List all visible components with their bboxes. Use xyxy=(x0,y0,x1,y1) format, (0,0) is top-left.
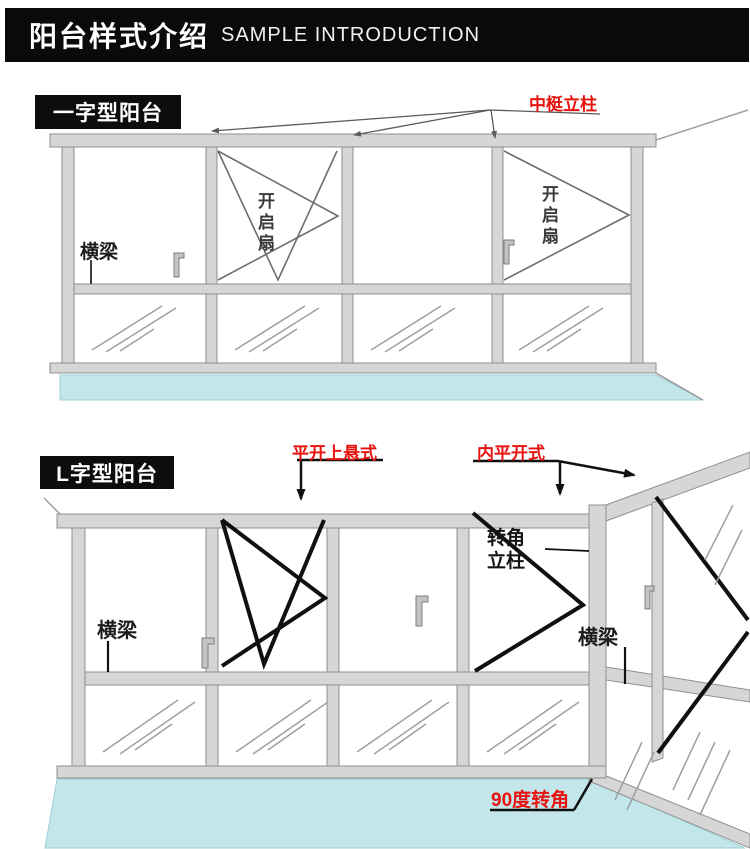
wall-edge-1 xyxy=(656,110,748,140)
page-title: 阳台样式介绍 xyxy=(29,15,209,55)
diagram2-L-balcony xyxy=(44,452,750,848)
diagram1-straight-balcony xyxy=(50,110,748,400)
label-corner-post: 转角立柱 xyxy=(487,528,531,574)
page-header: 阳台样式介绍 SAMPLE INTRODUCTION xyxy=(5,8,749,62)
label-inward-casement: 内平开式 xyxy=(477,439,545,464)
label-pointers-2 xyxy=(108,460,634,810)
label-opening-sash-left: 开启扇 xyxy=(252,192,277,276)
floor-area-1 xyxy=(60,373,703,400)
label-beam-3: 横梁 xyxy=(578,621,618,650)
sash-symbols-1 xyxy=(218,151,629,280)
label-casement-top-hung: 平开上悬式 xyxy=(292,439,377,464)
right-face-frame xyxy=(589,452,750,848)
diagram1-badge: 一字型阳台 xyxy=(35,95,181,129)
label-mullion-post: 中梃立柱 xyxy=(529,90,597,115)
label-beam-1: 横梁 xyxy=(80,237,118,264)
page: { "header": { "title_zh": "阳台样式介绍", "tit… xyxy=(0,0,750,849)
label-beam-2: 横梁 xyxy=(97,614,137,643)
label-opening-sash-right: 开启扇 xyxy=(536,185,561,269)
diagram2-badge: L字型阳台 xyxy=(40,456,174,489)
page-subtitle: SAMPLE INTRODUCTION xyxy=(221,24,480,47)
label-90deg-corner: 90度转角 xyxy=(491,785,569,812)
sash-symbols-2 xyxy=(222,497,748,753)
